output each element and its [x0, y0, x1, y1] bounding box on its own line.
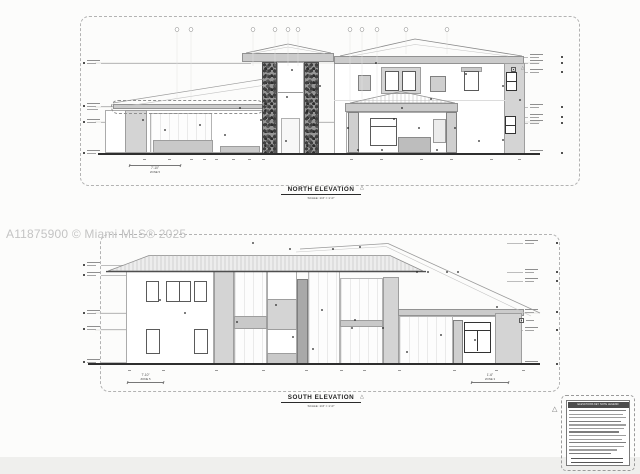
keynote-dot — [184, 312, 186, 314]
keynote-dot — [393, 118, 395, 120]
tick-mark — [340, 370, 343, 371]
keynote-dot — [224, 134, 226, 136]
tick-mark — [128, 370, 131, 371]
tick-mark — [162, 370, 165, 371]
tick-mark — [380, 159, 383, 160]
tick-mark — [168, 159, 171, 160]
south-elevation-title: SOUTH ELEVATION SCALE: 1/4" = 1'-0" — [281, 394, 361, 408]
keynote-dot — [382, 327, 384, 329]
keynote-dot — [164, 129, 166, 131]
legend-row — [569, 417, 626, 418]
keynote-dot — [454, 127, 456, 129]
keynote-dot — [236, 321, 238, 323]
keynote-dot — [351, 327, 353, 329]
keynote-dot — [332, 248, 334, 250]
tick-mark — [453, 370, 456, 371]
legend-row — [569, 431, 619, 432]
keynote-dot — [418, 127, 420, 129]
legend-signature-line — [571, 462, 623, 463]
south-roof-lines — [106, 244, 540, 317]
tick-mark — [203, 159, 206, 160]
tick-mark — [522, 370, 525, 371]
legend-rows — [569, 410, 628, 463]
grid-bubble — [189, 28, 193, 32]
keynote-text — [526, 320, 534, 321]
tick-mark — [232, 159, 235, 160]
tick-mark — [420, 159, 423, 160]
keynote-dot — [502, 139, 504, 141]
keynote-dot — [440, 334, 442, 336]
legend-row — [569, 449, 617, 450]
tick-mark — [305, 370, 308, 371]
tick-mark — [398, 370, 401, 371]
keynote-dot — [347, 127, 349, 129]
keynote-box-icon — [511, 67, 516, 72]
page-title: NORTH ELEVATION — [281, 186, 361, 195]
keynote-box-icon — [519, 318, 524, 323]
keynote-dot — [292, 336, 294, 338]
grid-bubble — [273, 28, 277, 32]
grid-bubble — [404, 28, 408, 32]
keynote-dot — [275, 304, 277, 306]
north-roof-lines — [113, 39, 522, 107]
legend-signature-line — [571, 458, 623, 459]
scale-label: SCALE: 1/4" = 1'-0" — [281, 196, 361, 200]
grid-bubble — [375, 28, 379, 32]
keynote-dot — [502, 85, 504, 87]
tick-mark — [215, 370, 218, 371]
keynote-dot — [159, 299, 161, 301]
keynote-dot — [142, 119, 144, 121]
north-dim-left: 7'-10" ZONE 5 — [129, 164, 181, 174]
tick-mark — [450, 159, 453, 160]
keynote-dot — [285, 140, 287, 142]
grid-bubble — [175, 28, 179, 32]
keynote-triangle-icon: △ — [360, 186, 364, 191]
keynote-dot — [436, 149, 438, 151]
tick-mark — [490, 159, 493, 160]
grid-bubble — [360, 28, 364, 32]
tick-mark — [190, 159, 193, 160]
keynote-dot — [427, 271, 429, 273]
legend-row — [569, 435, 626, 436]
legend-row — [569, 439, 622, 440]
keynote-dot — [289, 248, 291, 250]
keynote-dot — [457, 271, 459, 273]
south-dim-right: 1'-6" ZONE 3 — [471, 374, 509, 384]
keynote-dot — [319, 85, 321, 87]
legend-title: ELEVATIONS KEY NOTE LEGEND — [568, 402, 629, 408]
elevation-drawing-page: NORTH ELEVATION SCALE: 1/4" = 1'-0" △ SO… — [0, 0, 640, 474]
grid-bubble — [296, 28, 300, 32]
north-elevation-title: NORTH ELEVATION SCALE: 1/4" = 1'-0" — [281, 186, 361, 200]
keynote-dot — [381, 149, 383, 151]
legend-row — [569, 414, 623, 415]
keynote-dot — [260, 119, 262, 121]
keynote-dot — [359, 246, 361, 248]
legend-row — [569, 410, 626, 411]
tick-mark — [262, 370, 265, 371]
tick-mark — [518, 159, 521, 160]
grid-bubble — [251, 28, 255, 32]
keynote-dot — [401, 107, 403, 109]
south-dim-left: 7'-10" ZONE 5 — [127, 374, 164, 384]
keynote-dot — [291, 69, 293, 71]
tick-mark — [262, 159, 265, 160]
keynote-dot — [321, 309, 323, 311]
scale-label: SCALE: 1/4" = 1'-0" — [281, 404, 361, 408]
keynote-triangle-icon: △ — [360, 395, 364, 400]
keynote-dot — [286, 96, 288, 98]
tick-mark — [248, 159, 251, 160]
tick-mark — [350, 159, 353, 160]
tick-mark — [143, 159, 146, 160]
watermark: A11875900 © Miami MLS® 2025 — [6, 227, 186, 241]
keynote-dot — [375, 62, 377, 64]
legend-row — [569, 421, 621, 422]
keynote-dot — [430, 98, 432, 100]
page-title: SOUTH ELEVATION — [281, 394, 361, 403]
grid-bubble — [286, 28, 290, 32]
keynote-dot — [306, 111, 308, 113]
grid-bubble — [348, 28, 352, 32]
keynote-dot — [474, 339, 476, 341]
keynote-dot — [239, 107, 241, 109]
warning-triangle-icon: △ — [552, 406, 557, 413]
legend-row — [569, 453, 611, 454]
keynote-dot — [252, 242, 254, 244]
tick-mark — [363, 370, 366, 371]
legend-row — [569, 442, 626, 443]
keynote-dot — [406, 351, 408, 353]
legend-row — [569, 424, 626, 425]
keynote-dot — [465, 73, 467, 75]
keynote-dot — [496, 306, 498, 308]
keynote-dot — [354, 319, 356, 321]
keynote-dot — [446, 271, 448, 273]
keynote-dot — [519, 99, 521, 101]
keynote-triangle-icon: △ — [521, 66, 524, 71]
keynote-dot — [478, 140, 480, 142]
keynote-dot — [416, 271, 418, 273]
grid-bubble — [445, 28, 449, 32]
tick-mark — [215, 159, 218, 160]
legend-row — [569, 428, 624, 429]
keynote-dot — [357, 149, 359, 151]
keynote-dot — [312, 348, 314, 350]
keynote-dot — [199, 124, 201, 126]
legend-row — [569, 446, 624, 447]
tick-mark — [495, 370, 498, 371]
